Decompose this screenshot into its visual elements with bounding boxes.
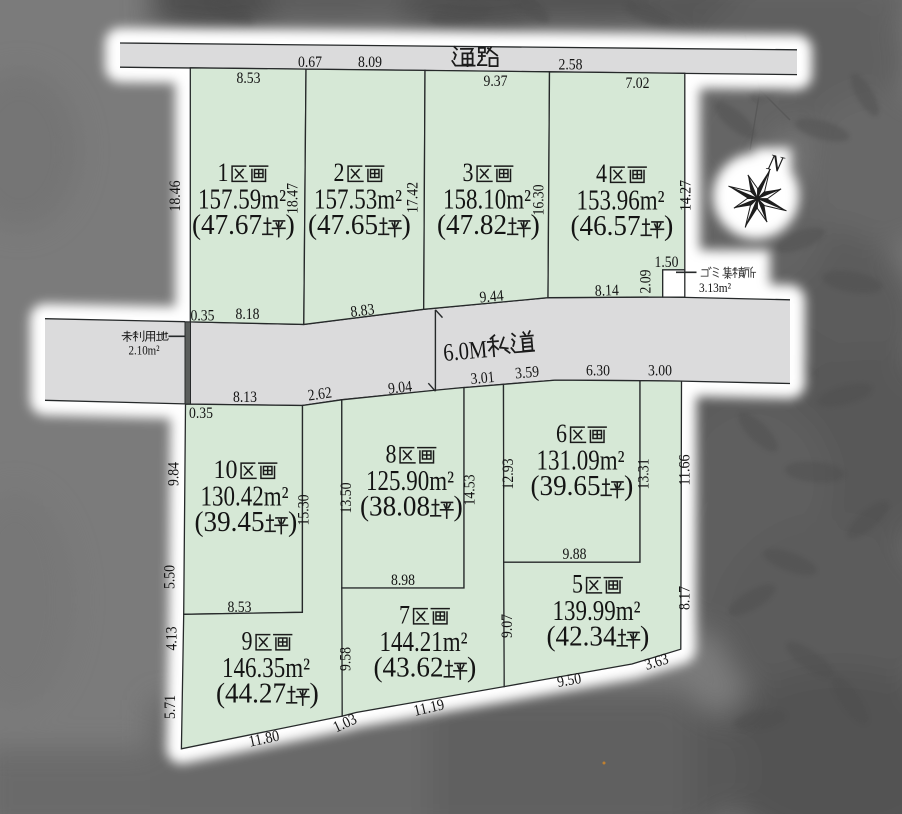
svg-text:2.09: 2.09 xyxy=(638,270,655,294)
svg-text:(39.65: (39.65 xyxy=(531,471,601,502)
svg-text:8: 8 xyxy=(386,440,397,469)
svg-text:4: 4 xyxy=(596,159,607,188)
svg-text:13.31: 13.31 xyxy=(636,459,653,490)
svg-text:6: 6 xyxy=(556,419,567,448)
svg-text:9.58: 9.58 xyxy=(338,647,355,671)
svg-text:5.50: 5.50 xyxy=(162,565,179,589)
svg-text:): ) xyxy=(286,210,295,241)
svg-text:(43.62: (43.62 xyxy=(374,653,444,684)
svg-text:4.13: 4.13 xyxy=(164,627,181,651)
svg-text:15.30: 15.30 xyxy=(296,495,313,526)
svg-text:(47.67: (47.67 xyxy=(192,210,262,241)
svg-text:8.98: 8.98 xyxy=(391,572,415,589)
svg-text:(47.65: (47.65 xyxy=(308,210,378,241)
svg-text:11.66: 11.66 xyxy=(677,455,694,486)
svg-text:(47.82: (47.82 xyxy=(437,210,507,241)
svg-text:8.83: 8.83 xyxy=(350,301,376,321)
svg-text:): ) xyxy=(531,210,540,241)
svg-text:(38.08: (38.08 xyxy=(360,492,430,523)
svg-text:9.37: 9.37 xyxy=(484,73,508,90)
svg-text:): ) xyxy=(467,653,476,684)
svg-text:5: 5 xyxy=(572,570,583,599)
svg-text:0.35: 0.35 xyxy=(189,405,213,422)
svg-text:(44.27: (44.27 xyxy=(216,679,286,710)
svg-text:8.13: 8.13 xyxy=(233,389,257,406)
svg-text:8.53: 8.53 xyxy=(237,70,261,87)
svg-text:8.18: 8.18 xyxy=(236,306,260,323)
svg-text:8.09: 8.09 xyxy=(358,54,382,71)
svg-text:18.46: 18.46 xyxy=(167,181,184,212)
svg-text:0.67: 0.67 xyxy=(298,54,322,71)
svg-text:8.17: 8.17 xyxy=(677,586,694,610)
svg-text:3.13m²: 3.13m² xyxy=(699,280,731,295)
svg-text:8.14: 8.14 xyxy=(595,282,620,300)
svg-text:): ) xyxy=(640,622,649,653)
svg-text:17.42: 17.42 xyxy=(405,182,422,213)
svg-text:10: 10 xyxy=(214,455,238,484)
svg-text:0.35: 0.35 xyxy=(191,308,215,325)
svg-text:): ) xyxy=(310,679,319,710)
svg-text:8.53: 8.53 xyxy=(228,599,252,616)
svg-text:(39.45: (39.45 xyxy=(195,507,265,538)
svg-text:6.0M: 6.0M xyxy=(442,336,488,367)
svg-text:6.30: 6.30 xyxy=(586,363,610,380)
svg-text:9.84: 9.84 xyxy=(166,462,183,486)
svg-text:2.58: 2.58 xyxy=(559,57,583,74)
svg-text:(42.34: (42.34 xyxy=(547,622,617,653)
svg-text:9: 9 xyxy=(242,627,253,656)
svg-text:7: 7 xyxy=(399,601,410,630)
svg-text:): ) xyxy=(624,471,633,502)
svg-text:5.71: 5.71 xyxy=(162,695,179,719)
svg-text:14.27: 14.27 xyxy=(678,180,695,211)
svg-text:9.04: 9.04 xyxy=(387,378,413,397)
svg-text:): ) xyxy=(454,492,463,523)
svg-text:1: 1 xyxy=(218,158,229,187)
svg-text:2: 2 xyxy=(334,158,345,187)
svg-text:): ) xyxy=(288,507,297,538)
svg-text:3.01: 3.01 xyxy=(470,369,495,388)
svg-text:(46.57: (46.57 xyxy=(571,211,641,242)
svg-text:3.00: 3.00 xyxy=(648,363,672,380)
svg-text:12.93: 12.93 xyxy=(500,459,517,490)
svg-text:): ) xyxy=(402,210,411,241)
svg-text:2.10m²: 2.10m² xyxy=(129,343,160,358)
svg-text:14.53: 14.53 xyxy=(462,475,479,506)
svg-text:3.59: 3.59 xyxy=(514,364,539,383)
svg-text:9.88: 9.88 xyxy=(563,546,587,563)
svg-text:9.07: 9.07 xyxy=(499,614,516,638)
svg-text:9.44: 9.44 xyxy=(479,288,504,307)
svg-text:13.50: 13.50 xyxy=(338,483,355,514)
svg-text:2.62: 2.62 xyxy=(307,384,333,404)
svg-text:3: 3 xyxy=(463,158,474,187)
svg-text:7.02: 7.02 xyxy=(626,75,650,92)
svg-text:): ) xyxy=(664,211,673,242)
svg-text:1.50: 1.50 xyxy=(655,254,679,271)
